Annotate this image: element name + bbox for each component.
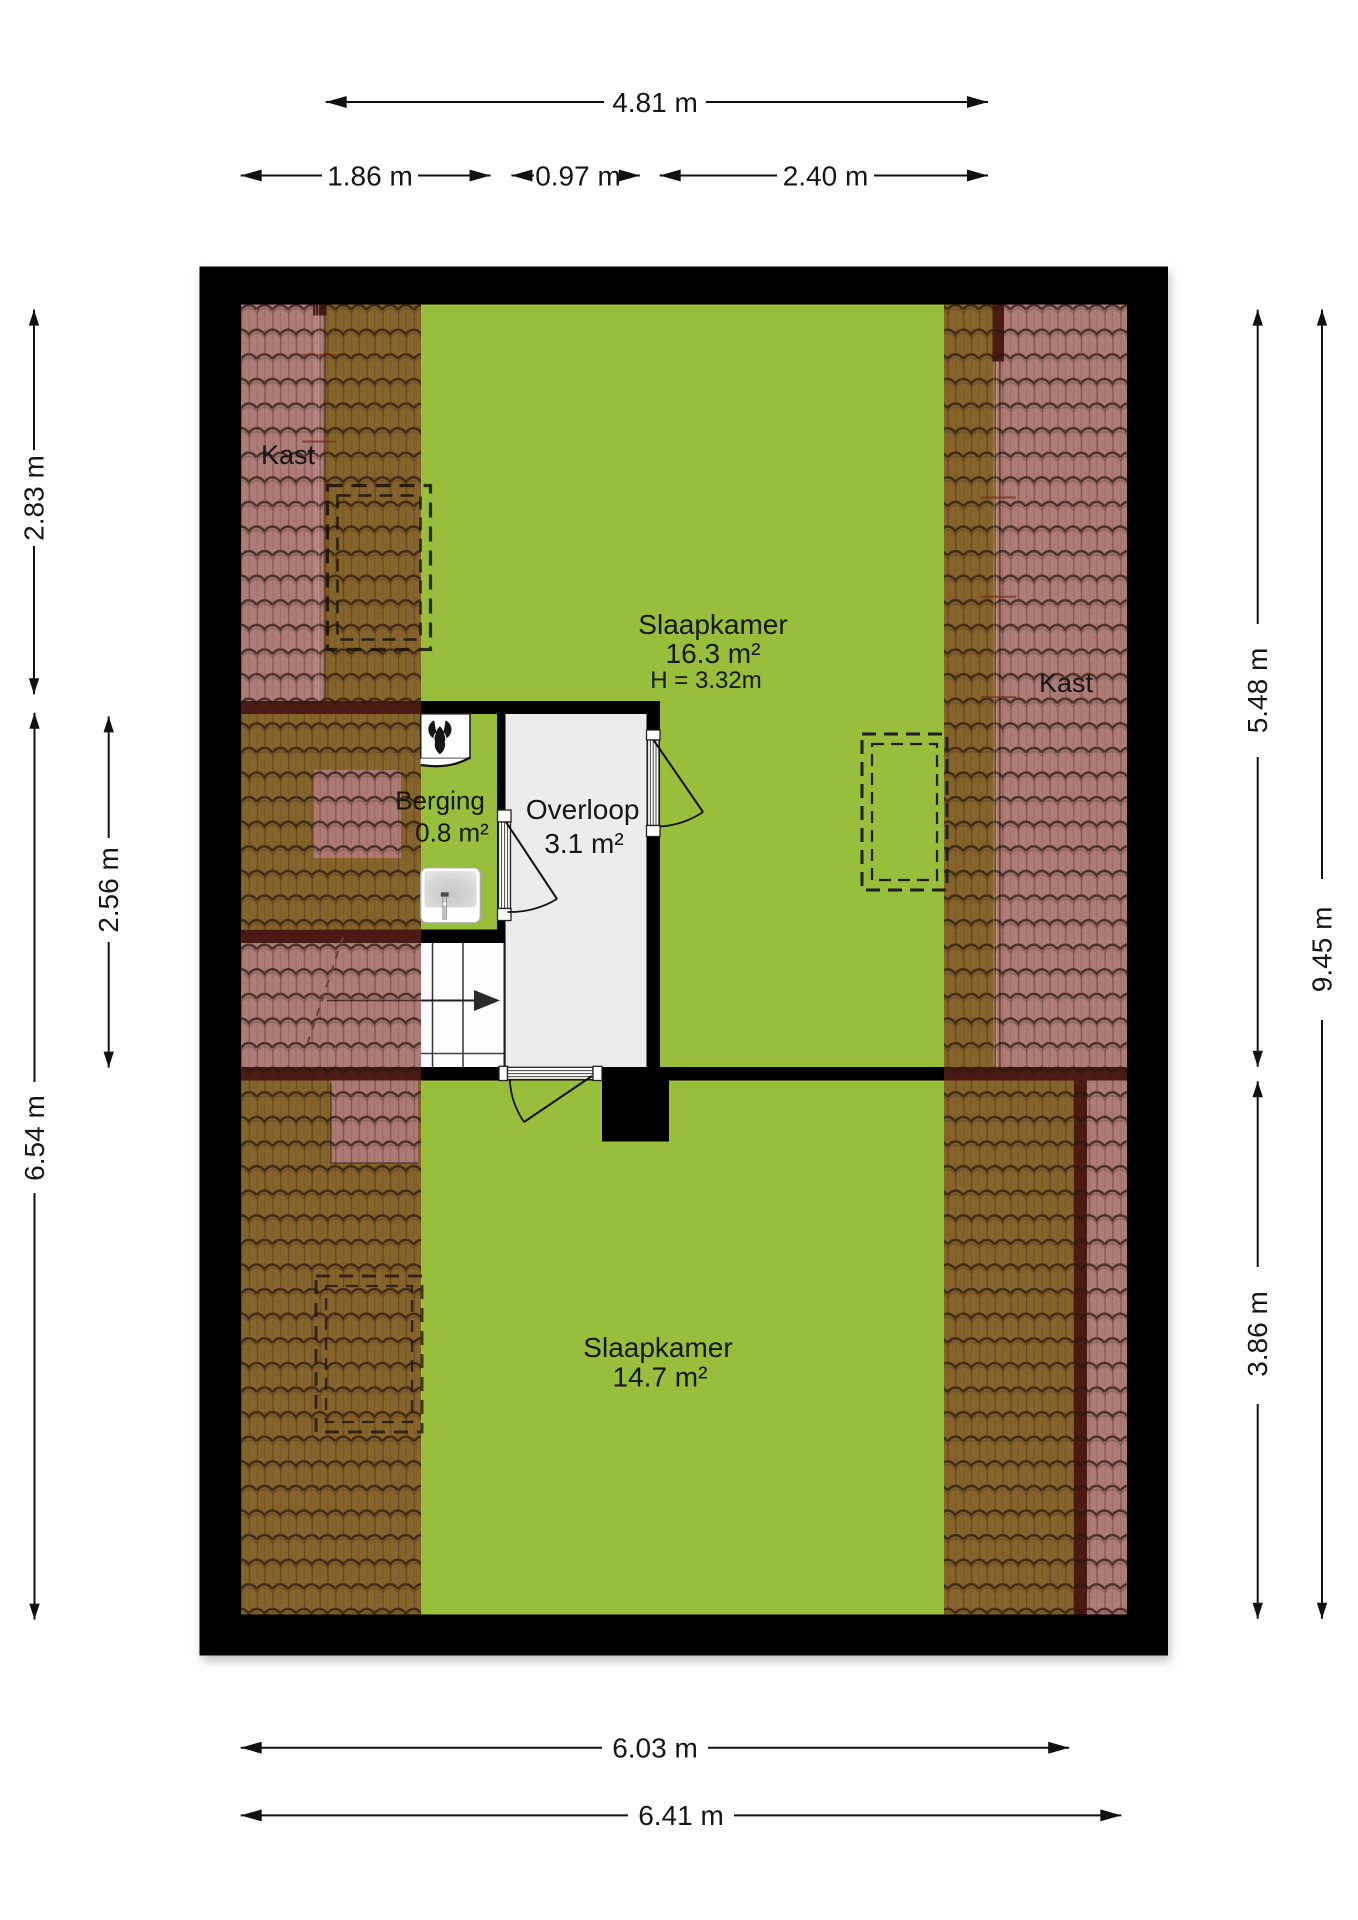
svg-text:Berging: Berging [395,786,485,816]
svg-text:1.86 m: 1.86 m [327,160,413,191]
svg-text:Slaapkamer: Slaapkamer [638,609,787,640]
svg-text:0.97 m: 0.97 m [535,160,621,191]
svg-text:6.41 m: 6.41 m [638,1800,724,1831]
svg-text:16.3 m²: 16.3 m² [666,638,761,669]
svg-text:14.7 m²: 14.7 m² [613,1361,708,1392]
svg-text:2.83 m: 2.83 m [19,455,50,541]
svg-text:Kast: Kast [261,440,316,470]
svg-text:2.40 m: 2.40 m [783,160,869,191]
svg-text:2.56 m: 2.56 m [93,847,124,933]
svg-text:9.45 m: 9.45 m [1307,907,1338,993]
svg-text:Kast: Kast [1039,668,1094,698]
svg-text:3.1 m²: 3.1 m² [544,828,623,859]
svg-text:Overloop: Overloop [526,794,640,825]
svg-text:Slaapkamer: Slaapkamer [583,1332,732,1363]
svg-text:4.81 m: 4.81 m [612,87,698,118]
svg-text:H = 3.32m: H = 3.32m [650,667,761,694]
svg-text:6.03 m: 6.03 m [612,1732,698,1763]
svg-text:6.54 m: 6.54 m [19,1095,50,1181]
svg-text:0.8 m²: 0.8 m² [415,817,489,847]
svg-text:5.48 m: 5.48 m [1242,648,1273,734]
svg-text:3.86 m: 3.86 m [1242,1291,1273,1377]
